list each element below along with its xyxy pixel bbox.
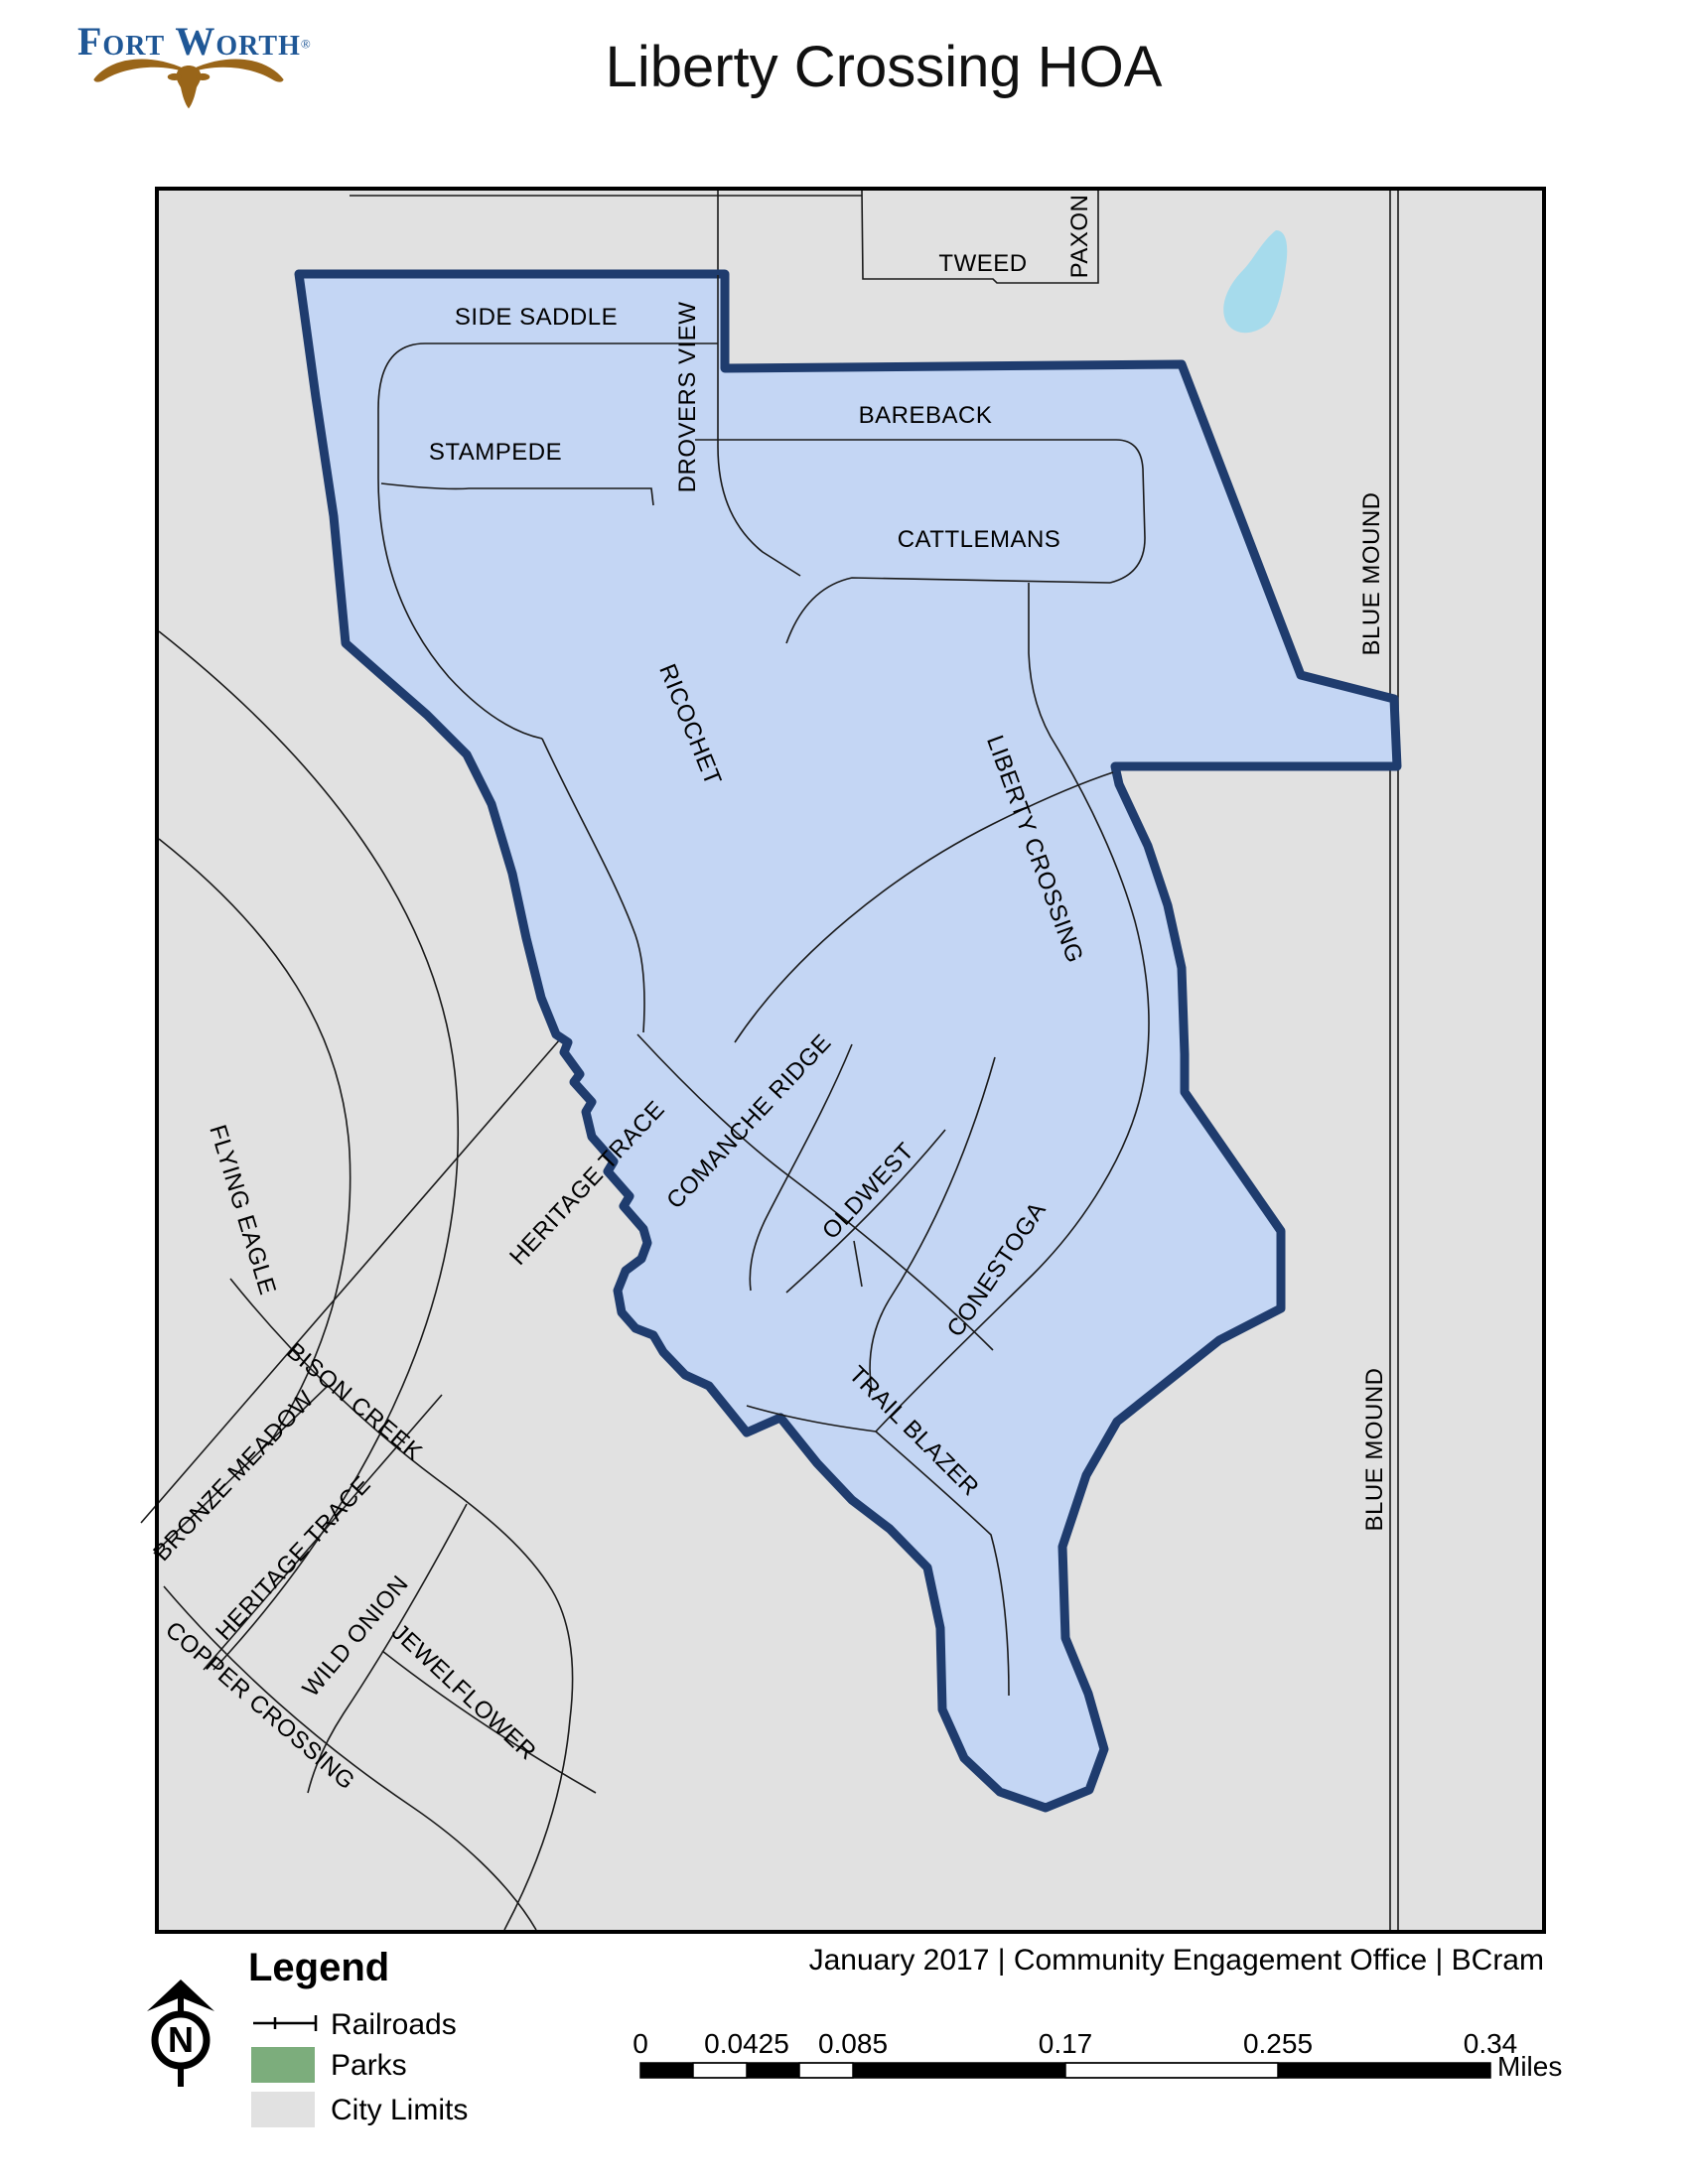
scale-tick-2: 0.085	[818, 2028, 888, 2059]
street-label-side-saddle: SIDE SADDLE	[455, 304, 618, 331]
scale-bar-labels: 0 0.0425 0.085 0.17 0.255 0.34	[633, 2028, 1517, 2059]
legend-item-city-limits: City Limits	[331, 2094, 468, 2127]
scale-bar: 0 0.0425 0.085 0.17 0.255 0.34 Miles	[596, 2025, 1589, 2095]
scale-unit: Miles	[1497, 2051, 1562, 2082]
street-label-bareback: BAREBACK	[859, 402, 993, 429]
scale-tick-1: 0.0425	[704, 2028, 789, 2059]
legend-item-railroads: Railroads	[331, 2008, 457, 2042]
map-credits: January 2017 | Community Engagement Offi…	[596, 1944, 1544, 1978]
north-arrow: N	[137, 1971, 228, 2100]
parks-swatch-icon	[251, 2047, 315, 2083]
legend-title: Legend	[248, 1946, 389, 1990]
legend-item-parks: Parks	[331, 2049, 407, 2083]
street-label-blue-mound-north: BLUE MOUND	[1358, 491, 1385, 655]
street-label-blue-mound-south: BLUE MOUND	[1361, 1367, 1388, 1531]
page: { "header": { "logo_text": "Fort Worth",…	[0, 0, 1688, 2184]
scale-tick-0: 0	[633, 2028, 648, 2059]
scale-tick-3: 0.17	[1039, 2028, 1093, 2059]
street-label-stampede: STAMPEDE	[429, 439, 562, 466]
railroad-line-icon	[253, 2015, 316, 2031]
map: TWEED PAXON SIDE SADDLE DROVERS VIEW BAR…	[0, 0, 1688, 2184]
street-label-cattlemans: CATTLEMANS	[898, 526, 1061, 553]
street-label-tweed: TWEED	[938, 250, 1027, 277]
scale-tick-4: 0.255	[1243, 2028, 1313, 2059]
street-label-drovers-view: DROVERS VIEW	[674, 302, 701, 493]
scale-bar-segments	[640, 2063, 1490, 2078]
city-limits-swatch-icon	[251, 2092, 315, 2127]
street-label-paxon: PAXON	[1066, 195, 1093, 279]
north-arrow-letter: N	[168, 2019, 194, 2060]
